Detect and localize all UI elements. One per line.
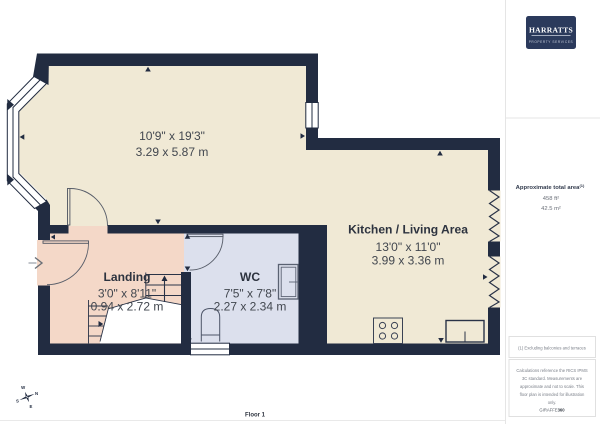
svg-text:E: E <box>29 404 32 409</box>
svg-text:0.94 x 2.72 m: 0.94 x 2.72 m <box>91 300 164 314</box>
svg-text:3'0" x 8'11": 3'0" x 8'11" <box>98 287 156 301</box>
svg-text:7'5" x 7'8": 7'5" x 7'8" <box>224 287 276 301</box>
svg-text:approximate and not to scale.: approximate and not to scale. This <box>520 384 584 389</box>
svg-text:HARRATTS: HARRATTS <box>529 26 573 35</box>
svg-text:floor plan is intended for ill: floor plan is intended for illustration <box>520 392 585 397</box>
svg-text:Calculations reference the RIC: Calculations reference the RICS IPMS <box>516 368 587 373</box>
svg-text:WC: WC <box>240 270 260 284</box>
svg-text:S: S <box>16 399 19 404</box>
svg-text:(1) Excluding balconies and te: (1) Excluding balconies and terraces <box>518 346 586 351</box>
svg-text:13'0" x 11'0": 13'0" x 11'0" <box>376 240 441 254</box>
svg-text:GIRAFFE360: GIRAFFE360 <box>539 408 565 413</box>
svg-text:Floor 1: Floor 1 <box>245 413 266 419</box>
svg-text:Landing: Landing <box>103 270 150 284</box>
svg-text:N: N <box>35 391 38 396</box>
svg-text:Approximate total area(1): Approximate total area(1) <box>516 183 585 191</box>
svg-text:10'9" x 19'3": 10'9" x 19'3" <box>139 129 205 143</box>
svg-text:3.29 x 5.87 m: 3.29 x 5.87 m <box>136 145 209 159</box>
svg-text:only.: only. <box>548 400 557 405</box>
svg-text:3.99 x 3.36 m: 3.99 x 3.36 m <box>372 253 445 267</box>
svg-text:458 ft²: 458 ft² <box>543 196 560 202</box>
svg-text:2.27 x 2.34 m: 2.27 x 2.34 m <box>214 300 287 314</box>
svg-text:PROPERTY SERVICES: PROPERTY SERVICES <box>529 40 574 44</box>
svg-text:Kitchen / Living Area: Kitchen / Living Area <box>348 223 468 237</box>
svg-text:42.5 m²: 42.5 m² <box>541 206 561 212</box>
svg-text:3C standard. Measurements are: 3C standard. Measurements are <box>522 376 583 381</box>
